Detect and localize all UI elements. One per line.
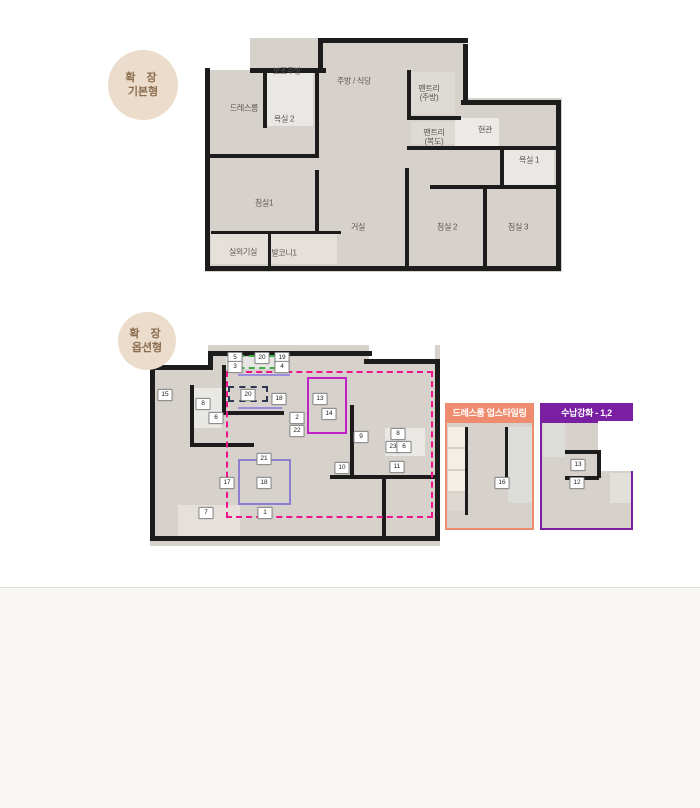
plan-wall xyxy=(205,266,561,271)
plan-wall xyxy=(407,70,411,120)
plan-wall xyxy=(435,359,440,541)
room-label: 보조주방 xyxy=(273,67,301,76)
plan-wall xyxy=(318,38,468,43)
option-marker: 7 xyxy=(199,507,214,519)
plan-patch xyxy=(610,473,631,503)
option-marker: 20 xyxy=(241,389,256,401)
legend-section: 가전가구마감조명예정 1 시스템에어컨 2 키친핏 냉장 / 냉동/김치 비스포… xyxy=(0,587,700,808)
room-label: 드레스룸 xyxy=(230,104,258,113)
plan-wall xyxy=(597,450,601,478)
plan-wall xyxy=(190,385,194,445)
option-marker: 9 xyxy=(354,431,369,443)
plan-patch xyxy=(598,421,633,471)
plan-patch xyxy=(448,427,465,447)
option-marker: 2 xyxy=(290,412,305,424)
option-marker: 11 xyxy=(390,461,405,473)
plan-wall xyxy=(205,68,210,271)
room-label: 침실 3 xyxy=(508,223,528,232)
option-marker: 16 xyxy=(495,477,510,489)
plan-patch xyxy=(508,427,532,503)
plan-patch xyxy=(448,449,465,469)
plan-patch xyxy=(369,345,435,359)
plan-wall xyxy=(500,148,504,188)
option-marker: 18 xyxy=(272,393,287,405)
mini-plan-title: 드레스룸 업스타일링 xyxy=(445,403,534,421)
plan-wall xyxy=(208,351,213,370)
plan-wall xyxy=(461,100,561,105)
plan-wall xyxy=(263,70,267,128)
option-marker: 15 xyxy=(158,389,173,401)
room-label: 욕실 2 xyxy=(274,115,294,124)
badge-line-2: 기본형 xyxy=(128,85,158,99)
plan-wall xyxy=(407,146,560,150)
plan-wall xyxy=(565,450,599,454)
room-label: 발코니1 xyxy=(271,249,296,258)
plan-patch xyxy=(448,471,465,491)
option-marker: 13 xyxy=(571,459,586,471)
option-marker: 22 xyxy=(290,425,305,437)
plan-wall xyxy=(150,536,440,541)
plan-wall xyxy=(430,185,560,189)
plan-wall xyxy=(150,365,155,541)
plan-wall xyxy=(318,38,323,72)
plan-wall xyxy=(205,154,317,158)
plan-wall xyxy=(405,168,409,268)
room-label: 침실1 xyxy=(255,199,273,208)
option-marker: 14 xyxy=(322,408,337,420)
plan-patch xyxy=(448,493,465,511)
plan-wall xyxy=(407,116,461,120)
option-marker: 20 xyxy=(255,352,270,364)
room-label: 욕실 1 xyxy=(519,156,539,165)
plan-wall xyxy=(483,185,487,268)
floorplan-brochure-page: 보조주방주방 / 식당드레스룸욕실 2팬트리 (주방)팬트리 (복도)현관욕실 … xyxy=(0,0,700,808)
room-label: 팬트리 (복도) xyxy=(423,128,444,146)
option-marker: 21 xyxy=(257,453,272,465)
plan-wall xyxy=(211,231,341,234)
plan-type-badge: 확 장 기본형 xyxy=(108,50,178,120)
plan-patch xyxy=(466,38,562,98)
option-marker: 18 xyxy=(257,477,272,489)
option-marker: 10 xyxy=(335,462,350,474)
plan-patch xyxy=(205,38,250,70)
plan-wall xyxy=(315,70,319,158)
option-marker: 12 xyxy=(570,477,585,489)
badge-line-1: 확 장 xyxy=(129,327,164,341)
plan-wall xyxy=(465,427,468,515)
badge-line-2: 옵션형 xyxy=(132,341,162,355)
plan-patch xyxy=(543,423,565,457)
option-marker: 8 xyxy=(196,398,211,410)
room-label: 거실 xyxy=(351,223,365,232)
room-label: 실외기실 xyxy=(229,248,257,257)
option-marker: 4 xyxy=(275,361,290,373)
room-label: 침실 2 xyxy=(437,223,457,232)
option-marker: 8 xyxy=(391,428,406,440)
mini-plan-title: 수납강화 - 1,2 xyxy=(540,403,633,421)
badge-line-1: 확 장 xyxy=(125,71,160,85)
plan-wall xyxy=(463,44,468,102)
option-marker: 3 xyxy=(228,361,243,373)
option-marker: 6 xyxy=(397,441,412,453)
room-label: 팬트리 (주방) xyxy=(418,84,439,102)
plan-wall xyxy=(315,170,319,232)
room-label: 현관 xyxy=(478,126,492,135)
option-marker: 1 xyxy=(258,507,273,519)
option-overlay xyxy=(307,377,347,434)
option-marker: 6 xyxy=(209,412,224,424)
plan-type-badge: 확 장 옵션형 xyxy=(118,312,176,370)
option-marker: 17 xyxy=(220,477,235,489)
option-marker: 13 xyxy=(313,393,328,405)
plan-wall xyxy=(364,359,440,364)
room-label: 주방 / 식당 xyxy=(337,77,371,86)
